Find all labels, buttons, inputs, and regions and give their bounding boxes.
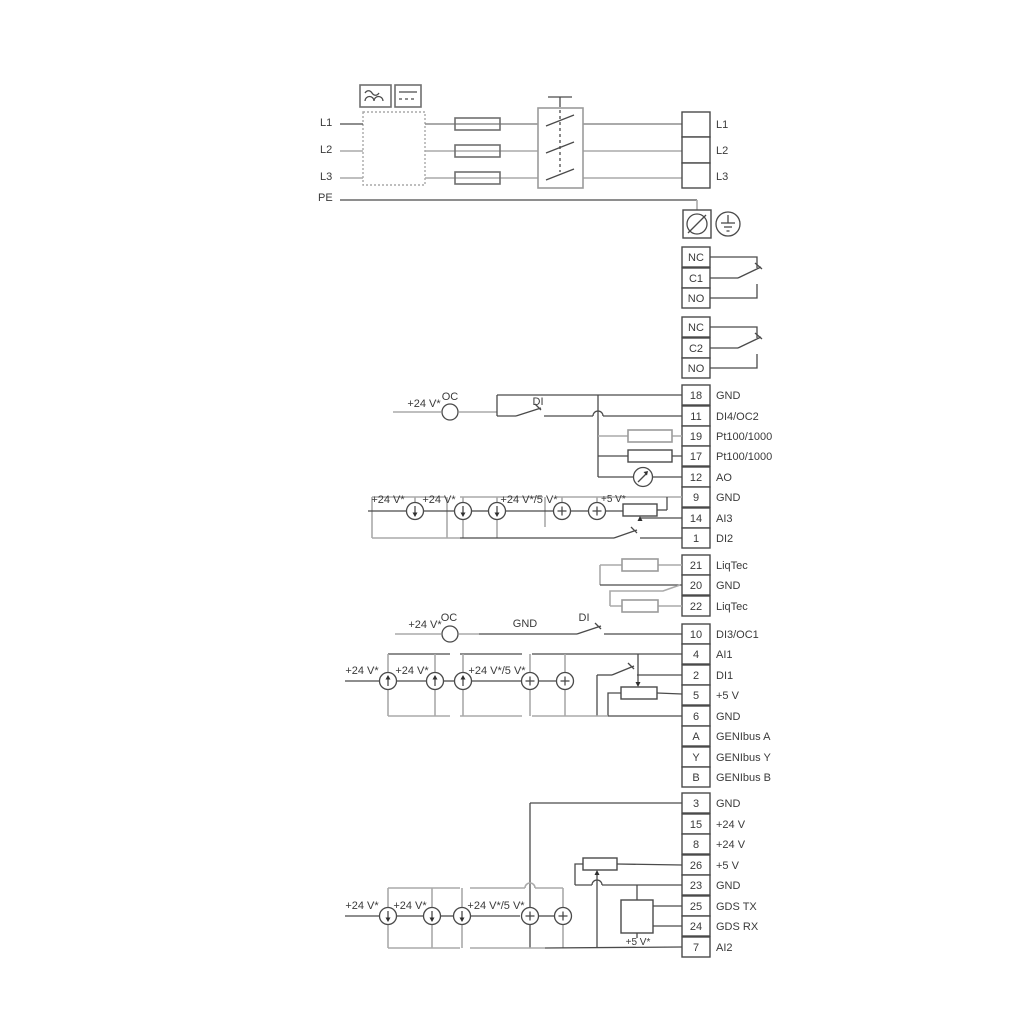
pe-terminal-icon (683, 210, 711, 238)
src-label: +24 V* (422, 494, 456, 506)
terminal-number: 2 (693, 670, 699, 682)
di4-oc2-circuit: +24 V* OC DI (393, 391, 682, 487)
terminal-number: 8 (693, 839, 699, 851)
terminal-label: AO (716, 472, 732, 484)
current-source-up-icon (380, 673, 397, 690)
terminal-label: GDS RX (716, 921, 759, 933)
terminal-label: GND (716, 580, 741, 592)
dc-line-icon (395, 85, 421, 107)
switch (516, 408, 541, 416)
terminal-label: GND (716, 390, 741, 402)
v24-label: +24 V* (408, 619, 442, 631)
liqtec-sensor-circuit (600, 559, 682, 612)
power-left-label-l1: L1 (320, 117, 332, 129)
potentiometer (623, 497, 682, 521)
di3-oc1-circuit: +24 V* OC GND DI (395, 612, 682, 642)
power-left-label-pe: PE (318, 192, 333, 204)
power-right-label-l3: L3 (716, 171, 728, 183)
oc-label: OC (441, 612, 458, 624)
terminal-number: 6 (693, 711, 699, 723)
terminal-number: A (692, 731, 700, 743)
open-collector-icon (442, 404, 458, 420)
terminal-number: 9 (693, 492, 699, 504)
terminal-label: DI4/OC2 (716, 411, 759, 423)
relay1-no: NO (688, 293, 705, 305)
terminal-label: GND (716, 711, 741, 723)
terminal-label: Pt100/1000 (716, 431, 772, 443)
terminal-number: B (692, 772, 699, 784)
terminal-label: +5 V (716, 690, 740, 702)
current-source-up-icon (455, 673, 472, 690)
src-label: +24 V* (371, 494, 405, 506)
terminal-label: LiqTec (716, 601, 748, 613)
resistor (622, 600, 658, 612)
io-terminal-strip-3: 3GND 15+24 V 8+24 V 26+5 V 23GND 25GDS T… (682, 793, 759, 957)
terminal-number: 7 (693, 942, 699, 954)
terminal-label: GENIbus Y (716, 752, 771, 764)
terminal-number: 14 (690, 513, 702, 525)
output-terminal-block: L1 L2 L3 (682, 112, 728, 188)
terminal-number: 19 (690, 431, 702, 443)
io-terminal-strip-2: 10DI3/OC1 4AI1 2DI1 5+5 V 6GND AGENIbus … (682, 624, 771, 787)
terminal-number: 26 (690, 860, 702, 872)
v5-label: +5 V* (626, 937, 651, 948)
terminal-label: GND (716, 880, 741, 892)
ai1-sensor-options: +24 V* +24 V* +24 V*/5 V* (345, 654, 682, 716)
earth-ground-icon (716, 212, 740, 236)
terminal-number: 4 (693, 649, 699, 661)
open-collector-icon (442, 626, 458, 642)
src-label: +24 V* (393, 900, 427, 912)
wiring-diagram-page: L1 L2 L3 PE (0, 0, 1024, 1024)
main-switch (538, 97, 583, 188)
terminal-label: DI2 (716, 533, 733, 545)
src-label: +24 V*/5 V* (467, 900, 525, 912)
terminal-label: GENIbus B (716, 772, 771, 784)
src-label: +24 V*/5 V* (500, 494, 558, 506)
current-source-up-icon (427, 673, 444, 690)
src-label: +24 V* (345, 665, 379, 677)
current-source-down-icon (424, 908, 441, 925)
terminal-label: LiqTec (716, 560, 748, 572)
terminal-label: +24 V (716, 819, 746, 831)
liqtec-terminal-strip: 21LiqTec 20GND 22LiqTec (682, 555, 748, 616)
power-right-label-l1: L1 (716, 119, 728, 131)
src-label: +24 V*/5 V* (468, 665, 526, 677)
terminal-label: Pt100/1000 (716, 451, 772, 463)
resistor-pt100-17 (628, 450, 672, 462)
relay2-contact (710, 327, 762, 368)
terminal-number: Y (692, 752, 700, 764)
relay1-c1: C1 (689, 273, 703, 285)
ai2-sensor-options: +24 V* +24 V* +24 V*/5 V* (345, 803, 682, 948)
ai3-sensor-options: +24 V* +24 V* +24 V*/5 V* +5 V* (368, 494, 682, 538)
power-right-label-l2: L2 (716, 145, 728, 157)
relay2-no: NO (688, 363, 705, 375)
switch (612, 666, 634, 675)
current-source-plus-icon (589, 503, 606, 520)
current-source-down-icon (489, 503, 506, 520)
terminal-number: 21 (690, 560, 702, 572)
terminal-number: 17 (690, 451, 702, 463)
terminal-number: 10 (690, 629, 702, 641)
oc-label: OC (442, 391, 459, 403)
terminal-number: 25 (690, 901, 702, 913)
relay1-block: NC C1 NO (682, 247, 762, 308)
filter-box (363, 112, 425, 185)
terminal-label: DI3/OC1 (716, 629, 759, 641)
terminal-number: 24 (690, 921, 702, 933)
io-terminal-strip-1: 18GND 11DI4/OC2 19Pt100/1000 17Pt100/100… (682, 385, 772, 548)
terminal-label: +24 V (716, 839, 746, 851)
terminal-label: GND (716, 798, 741, 810)
current-source-down-icon (454, 908, 471, 925)
resistor (622, 559, 658, 571)
terminal-label: GDS TX (716, 901, 757, 913)
v24-label: +24 V* (407, 398, 441, 410)
src-label: +5 V* (601, 494, 626, 505)
current-source-plus-icon (555, 908, 572, 925)
relay2-nc: NC (688, 322, 704, 334)
power-left-label-l2: L2 (320, 144, 332, 156)
terminal-number: 12 (690, 472, 702, 484)
current-source-plus-icon (522, 908, 539, 925)
terminal-label: +5 V (716, 860, 740, 872)
resistor-pt100-19 (628, 430, 672, 442)
terminal-number: 3 (693, 798, 699, 810)
terminal-number: 15 (690, 819, 702, 831)
src-label: +24 V* (395, 665, 429, 677)
current-source-down-icon (455, 503, 472, 520)
current-source-down-icon (407, 503, 424, 520)
terminal-label: AI2 (716, 942, 733, 954)
terminal-label: DI1 (716, 670, 733, 682)
terminal-label: AI3 (716, 513, 733, 525)
relay1-contact (710, 257, 762, 298)
terminal-number: 18 (690, 390, 702, 402)
terminal-number: 23 (690, 880, 702, 892)
ac-wave-icon (360, 85, 391, 107)
terminal-number: 1 (693, 533, 699, 545)
relay2-c2: C2 (689, 343, 703, 355)
relay1-nc: NC (688, 252, 704, 264)
terminal-label: GENIbus A (716, 731, 771, 743)
gnd-label: GND (513, 618, 538, 630)
terminal-label: GND (716, 492, 741, 504)
power-left-label-l3: L3 (320, 171, 332, 183)
terminal-number: 20 (690, 580, 702, 592)
relay2-block: NC C2 NO (682, 317, 762, 378)
terminal-number: 5 (693, 690, 699, 702)
current-source-down-icon (380, 908, 397, 925)
current-source-plus-icon (522, 673, 539, 690)
terminal-number: 11 (690, 411, 701, 423)
power-input-section: L1 L2 L3 PE (318, 85, 740, 238)
terminal-label: AI1 (716, 649, 733, 661)
gds-sensor-box: +5 V* (621, 885, 682, 948)
terminal-number: 22 (690, 601, 702, 613)
current-source-plus-icon (554, 503, 571, 520)
meter-icon (634, 468, 653, 487)
potentiometer (608, 654, 682, 716)
switch (614, 530, 637, 538)
wiring-diagram: L1 L2 L3 PE (0, 0, 1024, 1024)
switch (577, 626, 601, 634)
di-label: DI (579, 612, 590, 624)
src-label: +24 V* (345, 900, 379, 912)
current-source-plus-icon (557, 673, 574, 690)
